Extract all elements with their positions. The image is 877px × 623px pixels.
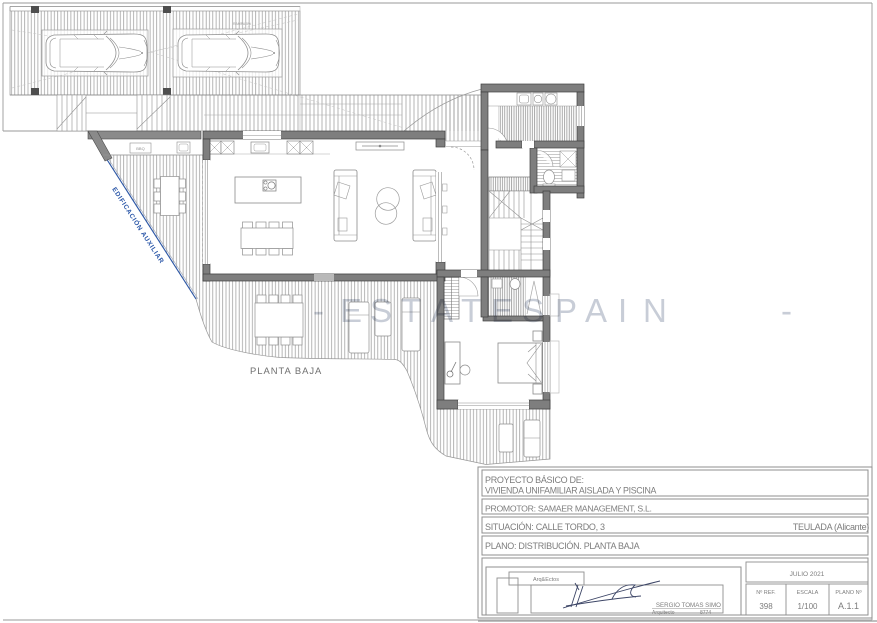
svg-text:1/100: 1/100 <box>797 602 818 611</box>
svg-text:A.1.1: A.1.1 <box>838 601 859 611</box>
svg-text:TEULADA (Alicante): TEULADA (Alicante) <box>793 522 869 532</box>
svg-text:Arquitecto: Arquitecto <box>652 610 675 616</box>
svg-text:398: 398 <box>759 602 773 611</box>
svg-text:PLANO: DISTRIBUCIÓN. PLANTA B: PLANO: DISTRIBUCIÓN. PLANTA BAJA <box>485 541 640 551</box>
svg-text:ESCALA: ESCALA <box>797 590 819 596</box>
svg-text:PLANO Nº: PLANO Nº <box>835 589 861 596</box>
svg-text:Arq&Ectos: Arq&Ectos <box>533 577 559 583</box>
svg-text:SERGIO TOMAS SIMO: SERGIO TOMAS SIMO <box>656 602 721 609</box>
svg-text:BBQ: BBQ <box>136 146 144 151</box>
svg-text:PROYECTO BÁSICO DE:: PROYECTO BÁSICO DE: <box>485 475 584 485</box>
svg-text:8774: 8774 <box>700 610 711 616</box>
svg-text:VIVIENDA UNIFAMILIAR AISLADA Y: VIVIENDA UNIFAMILIAR AISLADA Y PISCINA <box>485 486 657 496</box>
svg-text:RAMPA 5%: RAMPA 5% <box>233 22 251 26</box>
svg-text:SITUACIÓN: CALLE TORDO, 3: SITUACIÓN: CALLE TORDO, 3 <box>485 522 605 532</box>
svg-text:JULIO 2021: JULIO 2021 <box>790 571 825 578</box>
svg-text:PLANTA BAJA: PLANTA BAJA <box>250 365 322 376</box>
svg-text:Nº REF.: Nº REF. <box>756 589 776 596</box>
svg-text:PROMOTOR: SAMAER MANAGEMENT, S: PROMOTOR: SAMAER MANAGEMENT, S.L. <box>485 504 652 514</box>
